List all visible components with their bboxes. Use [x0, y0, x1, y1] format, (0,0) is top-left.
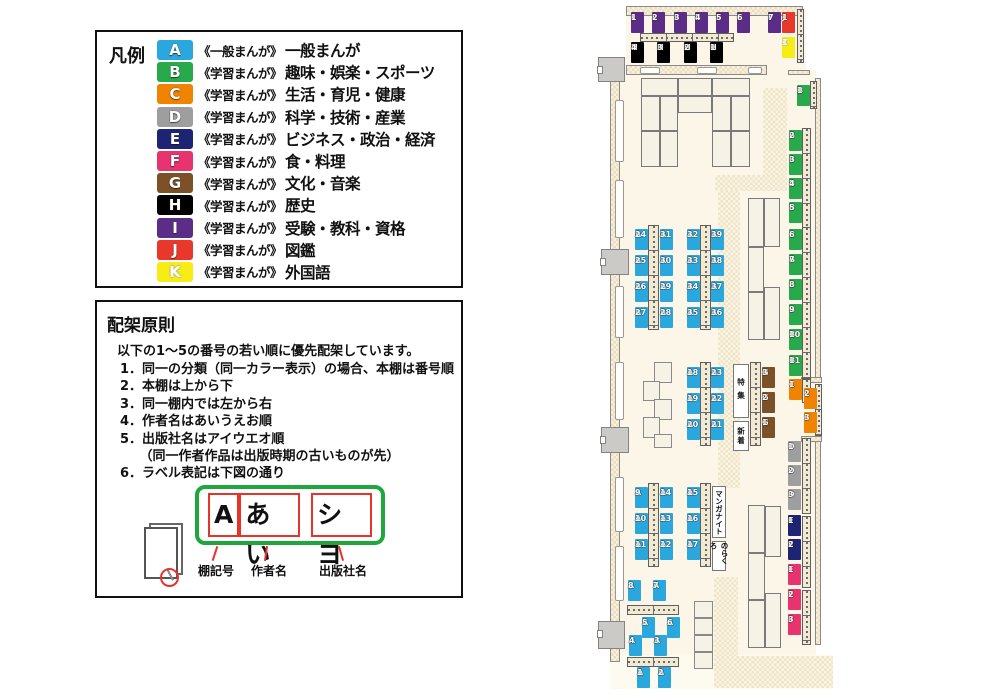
legend-series-label: 《学習まんが》: [198, 152, 282, 171]
shelf-label-number: 4: [629, 636, 635, 646]
map-shelf-label-H3: H3: [657, 42, 670, 63]
map-shelf-label-A7: A7: [653, 580, 666, 601]
shelf-label-number: 27: [635, 308, 646, 318]
shelf-label-number: 38: [711, 256, 722, 266]
shelf-label-number: 1: [710, 43, 716, 53]
map-table: [641, 131, 660, 167]
map-shelf-label-D3: D3: [788, 489, 801, 510]
caption-publisher: 出版社名: [319, 562, 367, 579]
map-door: [601, 249, 629, 275]
map-shelf-label-A17: A17: [687, 539, 700, 560]
map-shelf-label-D2: D2: [788, 465, 801, 486]
map-table: [764, 198, 780, 247]
map-textbox: 特集: [733, 364, 749, 418]
legend-swatch-J: J: [157, 240, 193, 260]
door-notch: [597, 66, 603, 74]
shelf-label-number: 5: [716, 13, 722, 23]
map-window: [748, 67, 762, 74]
map-textbox: マンガナイト: [712, 486, 726, 538]
map-shelf-label-E1: E1: [788, 515, 801, 536]
shelf-label-number: 33: [687, 256, 698, 266]
map-window: [615, 362, 624, 420]
map-shelf-label-A34: A34: [687, 281, 700, 302]
map-shelf-label-F1: F1: [788, 564, 801, 585]
map-shelf-label-B2: B2: [789, 130, 802, 151]
legend-swatch-E: E: [157, 129, 193, 149]
map-seat: [694, 601, 713, 618]
map-shelf-label-I5: I5: [716, 12, 729, 33]
map-shelf-label-G1: G1: [762, 417, 775, 438]
map-shelf-strip: [802, 438, 811, 514]
shelf-label-number: 2: [762, 393, 768, 403]
legend-item-F: F《学習まんが》食・料理: [157, 150, 435, 172]
map-shelf-strip: [640, 33, 734, 42]
shelf-label-number: 4: [695, 13, 701, 23]
legend-category-label: 一般まんが: [285, 39, 360, 61]
map-table: [765, 506, 781, 557]
legend-item-K: K《学習まんが》外国語: [157, 261, 435, 283]
door-notch: [600, 258, 606, 266]
legend-swatch-K: K: [157, 262, 193, 282]
map-shelf-label-A37: A37: [711, 281, 724, 302]
map-table: [678, 78, 712, 96]
map-shelf-label-A39: A39: [711, 229, 724, 250]
map-table: [748, 247, 764, 292]
map-wall: [815, 438, 821, 645]
map-wall: [815, 78, 821, 378]
shelf-label-number: 34: [687, 282, 698, 292]
shelf-label-number: 1: [788, 442, 794, 452]
map-wall: [788, 70, 810, 75]
shelf-label-number: 19: [687, 394, 698, 404]
legend-series-label: 《一般まんが》: [198, 41, 282, 60]
label-example-box: A あい シヨ: [195, 485, 385, 545]
map-door: [598, 621, 625, 649]
map-shelf-label-B11: B11: [789, 355, 802, 376]
principles-intro: 以下の1～5の番号の若い順に優先配架しています。: [117, 340, 419, 359]
map-table: [765, 593, 781, 648]
label-part-author: あい: [239, 493, 300, 537]
map-walkway: [763, 88, 787, 177]
shelf-label-number: 3: [788, 615, 794, 625]
shelf-label-number: 1: [762, 418, 768, 428]
shelf-label-number: 3: [789, 155, 795, 165]
shelf-label-number: 4: [631, 43, 637, 53]
shelf-label-number: 4: [789, 179, 795, 189]
shelf-label-number: 1: [782, 38, 788, 48]
shelf-label-number: 32: [687, 230, 698, 240]
shelf-label-number: 6: [737, 13, 743, 23]
legend-swatch-A: A: [157, 40, 193, 60]
map-shelf-label-I4: I4: [695, 12, 708, 33]
principles-panel: 配架原則 以下の1～5の番号の若い順に優先配架しています。 1．同一の分類（同一…: [95, 300, 463, 598]
principle-item-4: 4．作者名はあいうえお順: [120, 413, 454, 430]
map-shelf-label-C2: C2: [804, 388, 817, 409]
map-table: [712, 131, 731, 167]
map-shelf-label-A4: A4: [629, 635, 642, 656]
map-shelf-strip: [700, 225, 711, 330]
map-shelf-label-A27: A27: [635, 307, 648, 328]
legend-item-B: B《学習まんが》趣味・娯楽・スポーツ: [157, 61, 435, 83]
shelf-label-number: 2: [658, 668, 664, 678]
map-table: [641, 78, 678, 96]
shelf-label-number: 26: [635, 282, 646, 292]
caption-shelf-code: 棚記号: [198, 562, 234, 579]
label-position-circle: [160, 568, 179, 587]
legend-category-label: 外国語: [285, 261, 330, 283]
map-shelf-label-F3: F3: [788, 614, 801, 635]
map-seat: [694, 635, 713, 652]
door-notch: [600, 436, 606, 444]
map-shelf-label-D1: D1: [788, 441, 801, 462]
shelf-label-number: 7: [653, 581, 659, 591]
legend-category-label: 図鑑: [285, 239, 315, 261]
map-walkway: [715, 175, 787, 191]
legend-series-label: 《学習まんが》: [198, 218, 282, 237]
legend-item-J: J《学習まんが》図鑑: [157, 239, 435, 261]
map-shelf-strip: [802, 590, 811, 645]
principles-list: 1．同一の分類（同一カラー表示）の場合、本棚は番号順2．本棚は上から下3．同一棚…: [120, 361, 454, 483]
legend-item-E: E《学習まんが》ビジネス・政治・経済: [157, 128, 435, 150]
shelf-label-number: 12: [660, 540, 671, 550]
shelf-label-number: 1: [797, 86, 803, 96]
legend-swatch-C: C: [157, 84, 193, 104]
map-shelf-label-A19: A19: [687, 393, 700, 414]
map-shelf-label-A13: A13: [660, 513, 673, 534]
shelf-label-number: 9: [789, 305, 795, 315]
map-shelf-label-C1: C1: [789, 379, 802, 400]
legend-series-label: 《学習まんが》: [198, 174, 282, 193]
map-window: [697, 67, 717, 74]
map-table: [641, 96, 660, 131]
map-seat: [654, 434, 672, 448]
shelf-label-number: 7: [789, 255, 795, 265]
shelf-label-number: 39: [711, 230, 722, 240]
label-part-publisher: シヨ: [311, 493, 372, 537]
map-shelf-label-I3: I3: [674, 12, 687, 33]
map-shelf-label-A21: A21: [711, 419, 724, 440]
shelf-label-number: 1: [782, 13, 788, 23]
legend-category-label: 歴史: [285, 194, 315, 216]
shelf-label-number: 11: [789, 356, 800, 366]
map-shelf-label-A3: A3: [654, 635, 667, 656]
legend-series-label: 《学習まんが》: [198, 107, 282, 126]
shelf-label-number: 8: [789, 280, 795, 290]
map-seat: [694, 618, 713, 635]
legend-swatch-G: G: [157, 173, 193, 193]
map-shelf-label-A26: A26: [635, 281, 648, 302]
legend-series-label: 《学習まんが》: [198, 262, 282, 281]
shelf-label-number: 14: [660, 488, 671, 498]
map-walkway: [714, 577, 738, 658]
map-shelf-label-I6: I6: [737, 12, 750, 33]
map-table: [748, 198, 764, 247]
shelf-label-number: 25: [635, 256, 646, 266]
principle-item-7: 6．ラベル表記は下図の通り: [120, 465, 454, 482]
shelf-label-number: 1: [789, 380, 795, 390]
shelf-label-number: 10: [789, 330, 800, 340]
map-shelf-label-E2: E2: [788, 539, 801, 560]
map-window: [615, 286, 624, 338]
map-textbox: 新着: [733, 421, 749, 451]
legend-category-label: ビジネス・政治・経済: [285, 128, 435, 150]
shelf-label-number: 21: [711, 420, 722, 430]
map-shelf-label-A22: A22: [711, 393, 724, 414]
legend-swatch-F: F: [157, 151, 193, 171]
legend-series-label: 《学習まんが》: [198, 240, 282, 259]
map-shelf-label-A11: A11: [635, 539, 648, 560]
shelf-label-number: 24: [635, 230, 646, 240]
shelf-label-number: 8: [628, 581, 634, 591]
map-shelf-label-A18: A18: [687, 367, 700, 388]
legend-category-label: 生活・育児・健康: [285, 83, 405, 105]
map-table: [748, 505, 765, 553]
map-shelf-label-A31: A31: [660, 229, 673, 250]
map-shelf-label-H4: H4: [631, 42, 644, 63]
shelf-label-number: 1: [637, 668, 643, 678]
map-shelf-label-B10: B10: [789, 329, 802, 350]
shelf-label-number: 3: [788, 490, 794, 500]
map-shelf-label-B5: B5: [789, 202, 802, 223]
map-shelf-label-A10: A10: [635, 513, 648, 534]
map-window: [640, 67, 660, 74]
map-table: [660, 131, 678, 167]
map-shelf-label-A24: A24: [635, 229, 648, 250]
legend-item-H: H《学習まんが》歴史: [157, 194, 435, 216]
shelf-label-number: 2: [684, 43, 690, 53]
shelf-label-number: 35: [687, 308, 698, 318]
shelf-label-number: 36: [711, 308, 722, 318]
legend-swatch-D: D: [157, 107, 193, 127]
map-shelf-label-A8: A8: [628, 580, 641, 601]
shelf-label-number: 6: [667, 618, 673, 628]
shelf-label-number: 23: [711, 368, 722, 378]
legend-swatch-B: B: [157, 62, 193, 82]
legend-panel: 凡例 A《一般まんが》一般まんがB《学習まんが》趣味・娯楽・スポーツC《学習まん…: [95, 30, 463, 288]
shelf-label-number: 2: [788, 590, 794, 600]
map-shelf-strip: [797, 9, 804, 63]
shelf-label-number: 6: [789, 230, 795, 240]
map-shelf-strip: [648, 225, 659, 330]
map-table: [764, 287, 780, 340]
principle-item-1: 1．同一の分類（同一カラー表示）の場合、本棚は番号順: [120, 361, 454, 378]
map-shelf-label-A20: A20: [687, 419, 700, 440]
shelf-label-number: 3: [654, 636, 660, 646]
map-shelf-strip: [802, 516, 811, 588]
shelf-label-number: 11: [635, 540, 646, 550]
map-shelf-strip: [750, 362, 761, 446]
shelf-label-number: 2: [788, 540, 794, 550]
map-shelf-label-H2: H2: [684, 42, 697, 63]
legend-series-label: 《学習まんが》: [198, 85, 282, 104]
map-shelf-label-A38: A38: [711, 255, 724, 276]
map-window: [615, 477, 624, 532]
door-notch: [597, 630, 603, 638]
principles-title: 配架原則: [107, 311, 175, 336]
map-seat: [643, 381, 660, 401]
shelf-label-number: 31: [660, 230, 671, 240]
map-shelf-label-B3: B3: [789, 154, 802, 175]
map-shelf-label-F2: F2: [788, 589, 801, 610]
shelf-label-number: 5: [642, 618, 648, 628]
shelf-label-number: 18: [687, 368, 698, 378]
map-door: [601, 427, 629, 453]
legend-category-label: 科学・技術・産業: [285, 106, 405, 128]
map-shelf-label-A16: A16: [687, 513, 700, 534]
principle-item-6: （同一作者作品は出版時期の古いものが先）: [120, 448, 454, 465]
legend-title: 凡例: [109, 42, 145, 68]
shelf-label-number: 3: [674, 13, 680, 23]
map-shelf-label-A29: A29: [660, 281, 673, 302]
principle-item-2: 2．本棚は上から下: [120, 378, 454, 395]
map-window: [615, 546, 624, 601]
map-shelf-strip: [700, 362, 711, 446]
map-shelf-label-A12: A12: [660, 539, 673, 560]
shelf-label-number: 37: [711, 282, 722, 292]
shelf-label-number: 22: [711, 394, 722, 404]
map-table: [660, 96, 678, 131]
map-table: [748, 600, 765, 648]
map-shelf-label-B7: B7: [789, 254, 802, 275]
legend-series-label: 《学習まんが》: [198, 63, 282, 82]
map-shelf-label-B1: B1: [797, 85, 810, 106]
map-shelf-label-A2: A2: [658, 667, 671, 688]
map-shelf-label-B8: B8: [789, 279, 802, 300]
shelf-label-number: 1: [788, 565, 794, 575]
legend-series-label: 《学習まんが》: [198, 129, 282, 148]
caption-author: 作者名: [251, 562, 287, 579]
shelf-label-number: 2: [789, 131, 795, 141]
map-door: [598, 57, 625, 82]
map-shelf-label-A30: A30: [660, 255, 673, 276]
map-shelf-label-A15: A15: [687, 487, 700, 508]
legend-item-G: G《学習まんが》文化・音楽: [157, 172, 435, 194]
shelf-label-number: 2: [804, 389, 810, 399]
map-shelf-label-G2: G2: [762, 392, 775, 413]
legend-category-label: 食・料理: [285, 150, 345, 172]
map-shelf-label-G3: G3: [762, 367, 775, 388]
map-shelf-label-A36: A36: [711, 307, 724, 328]
map-table: [712, 78, 750, 96]
map-shelf-strip: [648, 483, 659, 567]
shelf-label-number: 10: [635, 514, 646, 524]
map-shelf-label-A6: A6: [667, 617, 680, 638]
map-shelf-label-A33: A33: [687, 255, 700, 276]
legend-swatch-I: I: [157, 218, 193, 238]
shelf-label-number: 13: [660, 514, 671, 524]
map-shelf-label-C3: C3: [804, 412, 817, 433]
shelf-label-number: 29: [660, 282, 671, 292]
shelf-label-number: 3: [804, 413, 810, 423]
shelf-label-number: 17: [687, 540, 698, 550]
legend-category-label: 趣味・娯楽・スポーツ: [285, 61, 435, 83]
map-shelf-label-A1: A1: [637, 667, 650, 688]
shelf-label-number: 1: [788, 516, 794, 526]
shelf-label-number: 16: [687, 514, 698, 524]
map-shelf-label-H1: H1: [710, 42, 723, 63]
map-shelf-strip: [627, 605, 679, 615]
map-shelf-label-A28: A28: [660, 307, 673, 328]
shelf-label-number: 5: [789, 203, 795, 213]
shelf-label-number: 28: [660, 308, 671, 318]
map-shelf-label-I1: I1: [631, 12, 644, 33]
map-shelf-label-A25: A25: [635, 255, 648, 276]
map-walkway: [714, 656, 833, 688]
shelf-label-number: 20: [687, 420, 698, 430]
map-shelf-strip: [810, 81, 817, 109]
map-table: [748, 553, 765, 600]
map-shelf-label-J1: J1: [782, 12, 795, 33]
legend-category-label: 文化・音楽: [285, 172, 360, 194]
map-shelf-strip: [802, 128, 811, 228]
map-shelf-label-A9: A9: [635, 487, 648, 508]
map-table: [731, 131, 750, 167]
label-connector: [212, 546, 219, 561]
principle-item-5: 5．出版社名はアイウエオ順: [120, 431, 454, 448]
label-part-shelf-code: A: [208, 493, 239, 537]
shelf-label-number: 1: [631, 13, 637, 23]
map-shelf-label-I7: I7: [768, 12, 781, 33]
legend-swatch-H: H: [157, 195, 193, 215]
map-shelf-label-B4: B4: [789, 178, 802, 199]
shelf-label-number: 2: [652, 13, 658, 23]
legend-rows: A《一般まんが》一般まんがB《学習まんが》趣味・娯楽・スポーツC《学習まんが》生…: [157, 39, 435, 283]
map-shelf-label-A23: A23: [711, 367, 724, 388]
shelf-label-number: 9: [635, 488, 641, 498]
map-seat: [694, 652, 713, 669]
map-table: [748, 292, 764, 340]
map-shelf-label-B9: B9: [789, 304, 802, 325]
shelf-label-number: 30: [660, 256, 671, 266]
map-table: [678, 96, 712, 113]
map-textbox: のらくろ: [712, 541, 726, 571]
principle-item-3: 3．同一棚内では左から右: [120, 396, 454, 413]
shelf-label-number: 3: [657, 43, 663, 53]
map-shelf-label-K1: K1: [782, 37, 795, 58]
map-table: [731, 96, 750, 131]
shelf-label-number: 7: [768, 13, 774, 23]
legend-item-C: C《学習まんが》生活・育児・健康: [157, 83, 435, 105]
legend-item-D: D《学習まんが》科学・技術・産業: [157, 106, 435, 128]
map-shelf-label-I2: I2: [652, 12, 665, 33]
legend-series-label: 《学習まんが》: [198, 196, 282, 215]
map-seat: [654, 362, 672, 383]
shelf-label-number: 2: [788, 466, 794, 476]
legend-item-A: A《一般まんが》一般まんが: [157, 39, 435, 61]
map-table: [712, 96, 731, 131]
map-shelf-label-A32: A32: [687, 229, 700, 250]
map-window: [615, 180, 624, 238]
legend-category-label: 受験・教科・資格: [285, 217, 405, 239]
map-shelf-strip: [802, 227, 811, 379]
map-shelf-label-B6: B6: [789, 229, 802, 250]
map-shelf-label-A35: A35: [687, 307, 700, 328]
shelf-label-number: 3: [762, 368, 768, 378]
legend-item-I: I《学習まんが》受験・教科・資格: [157, 217, 435, 239]
map-shelf-strip: [627, 657, 679, 667]
map-window: [615, 100, 624, 162]
map-shelf-label-A14: A14: [660, 487, 673, 508]
shelf-label-number: 15: [687, 488, 698, 498]
